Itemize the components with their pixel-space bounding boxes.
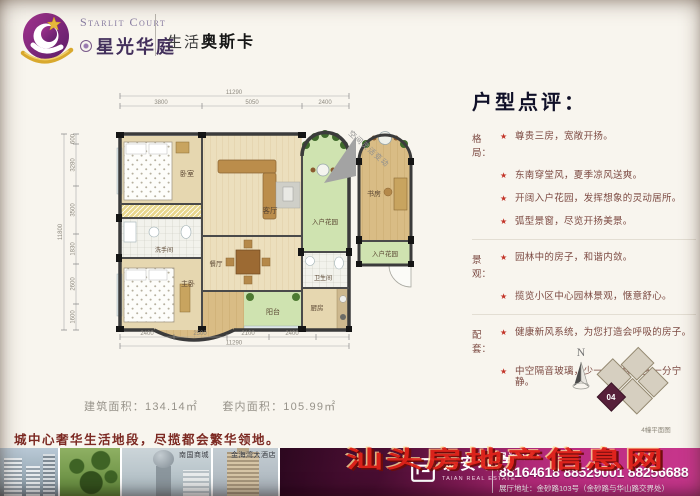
unit-number: 04 (607, 393, 616, 402)
review-row: ★开阔入户花园，发挥想象的灵动居所。 (472, 193, 696, 205)
brand-block: Starlit Court 星光华庭 (80, 15, 176, 59)
brand-name-en: Starlit Court (80, 15, 176, 30)
star-icon: ★ (500, 291, 515, 301)
room-label-living: 客厅 (263, 205, 278, 215)
svg-text:11800: 11800 (58, 223, 64, 240)
desk (394, 178, 407, 210)
tower-shape (156, 466, 171, 496)
svg-text:5050: 5050 (245, 100, 259, 106)
tagline-bold: 奥斯卡 (201, 34, 255, 51)
keyplan: N 04 4幢平面图 (556, 338, 696, 438)
photo-hotel: 金海湾大酒店 (213, 448, 278, 496)
slogan-text: 城中心奢华生活地段，尽揽都会繁华领地。 (14, 429, 280, 448)
room-label-dining: 餐厅 (210, 259, 224, 268)
review-row: ★东南穿堂风，夏季凉风送爽。 (472, 170, 696, 182)
keyplan-caption: 4幢平面图 (641, 425, 671, 434)
area-figures: 建筑面积：134.14㎡ 套内面积：105.99㎡ (84, 398, 356, 414)
review-row: 景观：★园林中的房子，和谐内敛。 (472, 252, 696, 280)
svg-text:2500: 2500 (193, 331, 207, 337)
tagline-prefix: 生活 (167, 34, 201, 51)
dining-table (236, 250, 260, 274)
review-category: 景观： (472, 252, 500, 280)
plant-icon (292, 293, 300, 301)
star-icon: ★ (500, 131, 515, 141)
room-label-kitchen: 厨房 (311, 303, 324, 312)
svg-text:3800: 3800 (154, 100, 168, 106)
compass-icon (574, 362, 581, 386)
star-icon: ★ (500, 170, 515, 180)
plant-icon (246, 293, 254, 301)
svg-text:2400: 2400 (285, 331, 299, 337)
svg-text:1600: 1600 (71, 310, 77, 324)
review-text: 揽览小区中心园林景观，惬意舒心。 (515, 291, 672, 303)
room-label-bath1: 洗手间 (155, 246, 173, 254)
door-swing (389, 265, 411, 287)
brochure-page: Starlit Court 星光华庭 生活奥斯卡 户型点评： 格局：★尊贵三房，… (0, 0, 700, 496)
svg-text:11290: 11290 (226, 90, 243, 96)
star-icon: ★ (500, 327, 515, 337)
svg-text:1830: 1830 (71, 242, 77, 256)
photo-mall: 南国商城 (122, 448, 211, 496)
review-separator (472, 314, 696, 315)
review-category: 格局： (472, 131, 500, 159)
room-label-balcony: 阳台 (266, 307, 280, 316)
room-label-bedroom: 卧室 (180, 169, 194, 178)
room-label-study: 书房 (367, 189, 381, 198)
review-separator (472, 239, 696, 240)
svg-text:2600: 2600 (71, 277, 77, 291)
inner-area: 套内面积：105.99㎡ (222, 401, 336, 413)
review-row: ★揽览小区中心园林景观，惬意舒心。 (472, 291, 696, 303)
star-icon: ★ (500, 193, 515, 203)
star-icon: ★ (500, 366, 515, 376)
built-area: 建筑面积：134.14㎡ (84, 401, 198, 413)
review-text: 弧型景窗，尽览开扬美景。 (515, 216, 633, 228)
site-watermark: 汕头房地产信息网 (346, 440, 666, 474)
photo-park (60, 448, 120, 496)
kitchen-counter (337, 288, 349, 330)
building-outline (586, 340, 671, 425)
north-label: N (577, 345, 586, 359)
svg-text:600: 600 (71, 133, 77, 144)
review-text: 园林中的房子，和谐内敛。 (515, 252, 633, 264)
showroom-address: 展厅地址：金砂路103号（金砂路与华山路交界处） (499, 483, 700, 494)
brand-tagline: 生活奥斯卡 (167, 28, 255, 52)
svg-text:3280: 3280 (71, 158, 77, 172)
review-text: 开阔入户花园，发挥想象的灵动居所。 (515, 193, 682, 205)
room-label-master: 主卧 (181, 279, 195, 288)
brand-seal-icon (80, 40, 92, 52)
svg-text:2400: 2400 (318, 100, 332, 106)
garden-table (317, 164, 329, 176)
entry-garden-floor (302, 133, 349, 253)
room-label-mini-garden: 入户花园 (372, 249, 398, 258)
review-row: ★弧型景窗，尽览开扬美景。 (472, 216, 696, 228)
review-text: 尊贵三房，宽敞开扬。 (515, 131, 613, 143)
mini-plan: 书房 入户花园 (356, 132, 414, 288)
svg-text:2100: 2100 (241, 331, 255, 337)
room-label-garden: 入户花园 (312, 217, 338, 226)
sofa (218, 160, 276, 173)
photo-cityscape (0, 448, 58, 496)
review-category: 配套： (472, 327, 500, 355)
photo-caption: 南国商城 (179, 450, 209, 460)
review-text: 健康新风系统，为您打造会呼吸的房子。 (515, 327, 691, 339)
review-row: 格局：★尊贵三房，宽敞开扬。 (472, 131, 696, 159)
svg-text:2400: 2400 (140, 331, 154, 337)
star-icon: ★ (500, 216, 515, 226)
svg-text:11290: 11290 (226, 341, 243, 347)
brand-name-cn: 星光华庭 (96, 33, 176, 59)
brand-logo-icon (16, 8, 76, 72)
floorplan: 卧室 主卧 客厅 餐厅 厨房 洗手间 卫生间 阳台 入户花园 (54, 86, 422, 354)
review-title: 户型点评： (472, 86, 696, 115)
review-text: 东南穿堂风，夏季凉风送爽。 (515, 170, 642, 182)
header-divider (155, 14, 156, 56)
photo-caption: 金海湾大酒店 (231, 450, 276, 460)
svg-text:3500: 3500 (71, 203, 77, 217)
star-icon: ★ (500, 252, 515, 262)
room-label-bath2: 卫生间 (314, 274, 332, 282)
